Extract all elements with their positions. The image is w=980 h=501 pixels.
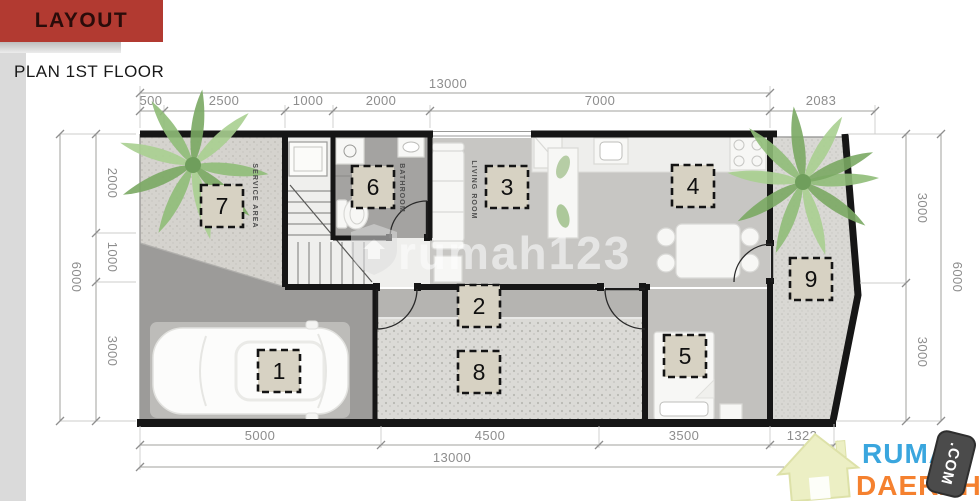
- room-number: 7: [216, 193, 229, 219]
- planter-divider: [548, 148, 578, 238]
- dim-label: 1000: [105, 242, 120, 273]
- dim-label: 2083: [806, 93, 837, 108]
- dim-label: 2500: [209, 93, 240, 108]
- dim-label: 2000: [105, 168, 120, 199]
- room-marker-6: 6: [352, 166, 394, 208]
- car: [153, 321, 348, 421]
- dim-bottom-segments: 5000 4500 3500 1322: [136, 428, 838, 449]
- laundry-machine: [289, 142, 327, 176]
- page-title: LAYOUT: [35, 9, 128, 33]
- shower: [336, 138, 364, 164]
- living-room-label: LIVING ROOM: [470, 160, 477, 219]
- room-number: 9: [805, 266, 818, 292]
- room-marker-9: 9: [790, 258, 832, 300]
- dim-label: 5000: [245, 428, 276, 443]
- dim-label: 6000: [950, 262, 965, 293]
- bath-sink-basin: [403, 142, 419, 152]
- dim-label: 4500: [475, 428, 506, 443]
- dim-label: 3000: [915, 193, 930, 224]
- nightstand: [720, 404, 742, 420]
- floor-plan-page: 13000 500 2500 1000 2000 7000 2083 5000 …: [0, 0, 980, 501]
- banner-shadow: [0, 42, 121, 53]
- living-room-window: [433, 129, 531, 138]
- dim-label: 500: [140, 93, 163, 108]
- dim-bottom-total: 13000: [136, 450, 838, 471]
- page-left-strip: [0, 53, 26, 501]
- dim-label: 13000: [433, 450, 471, 465]
- bathroom-label: BATHROOM: [398, 163, 405, 213]
- room-marker-1: 1: [258, 350, 300, 392]
- room-marker-2: 2: [458, 285, 500, 327]
- room-marker-3: 3: [486, 166, 528, 208]
- dim-left-total: 6000: [56, 130, 84, 425]
- plan-subtitle: PLAN 1ST FLOOR: [14, 62, 164, 82]
- room-marker-5: 5: [664, 335, 706, 377]
- room-marker-7: 7: [201, 185, 243, 227]
- dim-label: 6000: [69, 262, 84, 293]
- layout-banner: LAYOUT: [0, 0, 163, 42]
- dim-label: 3000: [105, 336, 120, 367]
- dim-label: 2000: [366, 93, 397, 108]
- service-area-label: SERVICE AREA: [251, 163, 258, 228]
- dim-left-segments: 2000 1000 3000: [92, 130, 120, 425]
- room-number: 5: [679, 343, 692, 369]
- dim-label: 7000: [585, 93, 616, 108]
- dim-label: 13000: [429, 76, 467, 91]
- dim-label: 1000: [293, 93, 324, 108]
- dim-label: 3000: [915, 337, 930, 368]
- room-marker-8: 8: [458, 351, 500, 393]
- room-number: 1: [273, 358, 286, 384]
- watermark-text: rumah123: [398, 227, 631, 279]
- room-number: 4: [687, 173, 700, 199]
- dim-label: 3500: [669, 428, 700, 443]
- room-marker-4: 4: [672, 165, 714, 207]
- room-number: 2: [473, 293, 486, 319]
- room8-floor: [377, 318, 643, 421]
- kitchen-sink-basin: [600, 142, 622, 160]
- dim-right-segments: 3000 3000: [902, 130, 930, 425]
- room-number: 8: [473, 359, 486, 385]
- dim-right-total: 6000: [937, 130, 965, 425]
- room-number: 3: [501, 174, 514, 200]
- room-number: 6: [367, 174, 380, 200]
